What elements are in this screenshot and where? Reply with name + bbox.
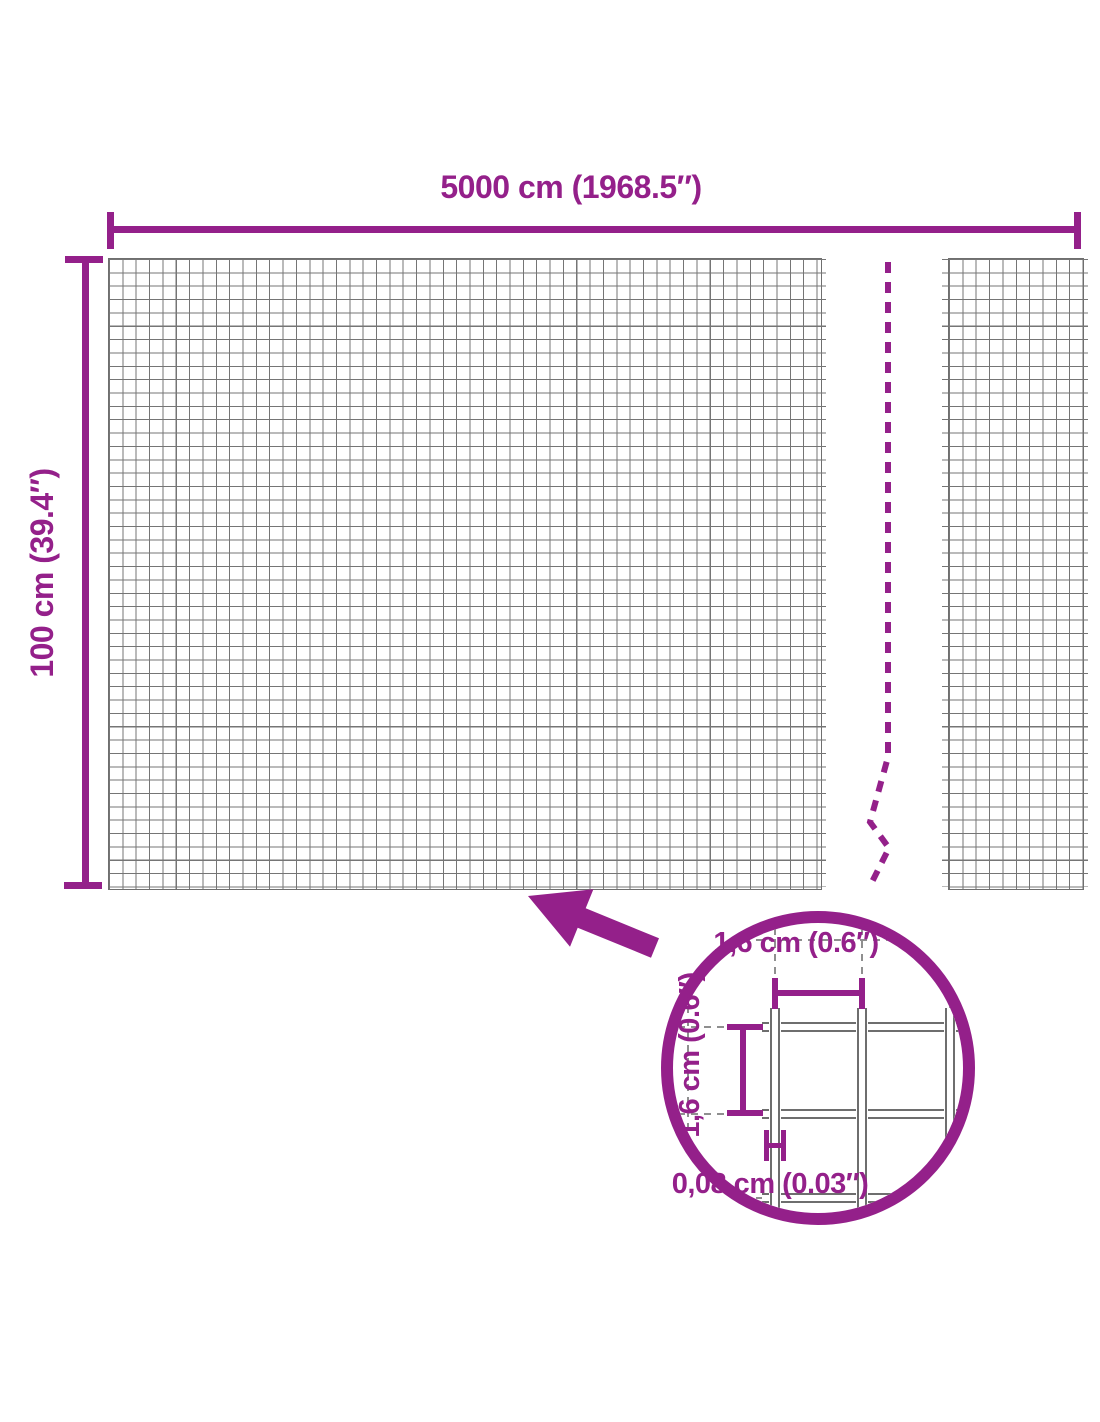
wire-thickness-mark — [764, 1130, 769, 1161]
cell-width-label: 1,6 cm (0.6″) — [713, 927, 878, 959]
mesh-panel-left — [108, 258, 822, 890]
cell-height-label: 1,6 cm (0.6″) — [674, 972, 706, 1137]
arrow-pointing-to-mesh-icon — [528, 889, 659, 957]
wire-thickness-label: 0,08 cm (0.03″) — [672, 1168, 869, 1200]
dashed-break-line-icon — [870, 262, 889, 886]
cell-height-bracket — [740, 1027, 746, 1113]
mesh-wire-stubs-right-panel-right — [1082, 259, 1088, 887]
magnified-mesh — [665, 915, 975, 1225]
height-dimension-label: 100 cm (39.4″) — [22, 273, 62, 873]
mesh-panel-right — [948, 258, 1084, 890]
height-dimension-tick-top — [65, 256, 103, 263]
width-dimension-label: 5000 cm (1968.5″) — [271, 167, 871, 207]
magnifier-ring-icon — [667, 917, 969, 1219]
cell-width-bracket — [772, 990, 865, 996]
height-dimension-line — [82, 259, 89, 886]
zoom-detail-circle: 1,6 cm (0.6″) 1,6 cm (0.6″) 0,08 cm (0.0… — [665, 915, 975, 1225]
width-dimension-tick-left — [107, 212, 114, 249]
width-dimension-tick-right — [1074, 212, 1081, 249]
mesh-wire-stubs-left-panel — [820, 259, 826, 887]
mesh-dimension-diagram: 5000 cm (1968.5″) 100 cm (39.4″) — [0, 0, 1100, 1422]
height-dimension-tick-bottom — [64, 882, 102, 889]
width-dimension-line — [111, 226, 1078, 233]
